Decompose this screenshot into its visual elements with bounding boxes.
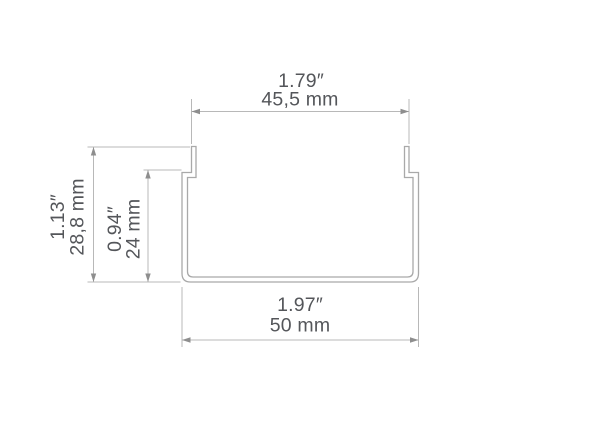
outer-height-mm-label: 28,8 mm xyxy=(67,178,89,255)
arrowhead-down xyxy=(145,274,150,283)
dimension-outer-width: 1.97″ 50 mm xyxy=(182,287,419,347)
arrowhead-right xyxy=(401,109,410,114)
arrowhead-left xyxy=(192,109,201,114)
outer-width-inches-label: 1.97″ xyxy=(277,294,323,316)
inner-height-mm-label: 24 mm xyxy=(123,199,145,260)
inner-width-mm-label: 45,5 mm xyxy=(261,89,338,111)
arrowhead-down xyxy=(91,274,96,283)
arrowhead-up xyxy=(91,147,96,156)
arrowhead-right xyxy=(410,337,419,342)
profile-outline xyxy=(182,147,419,283)
arrowhead-up xyxy=(145,170,150,179)
dimension-inner-width: 1.79″ 45,5 mm xyxy=(192,70,410,144)
profile-diagram: 1.79″ 45,5 mm 1.97″ 50 mm 1.13″ 28,8 mm xyxy=(0,0,600,431)
dimension-inner-height: 0.94″ 24 mm xyxy=(104,170,182,282)
drawing-canvas: 1.79″ 45,5 mm 1.97″ 50 mm 1.13″ 28,8 mm xyxy=(0,0,600,431)
outer-width-mm-label: 50 mm xyxy=(270,315,331,337)
arrowhead-left xyxy=(182,337,191,342)
